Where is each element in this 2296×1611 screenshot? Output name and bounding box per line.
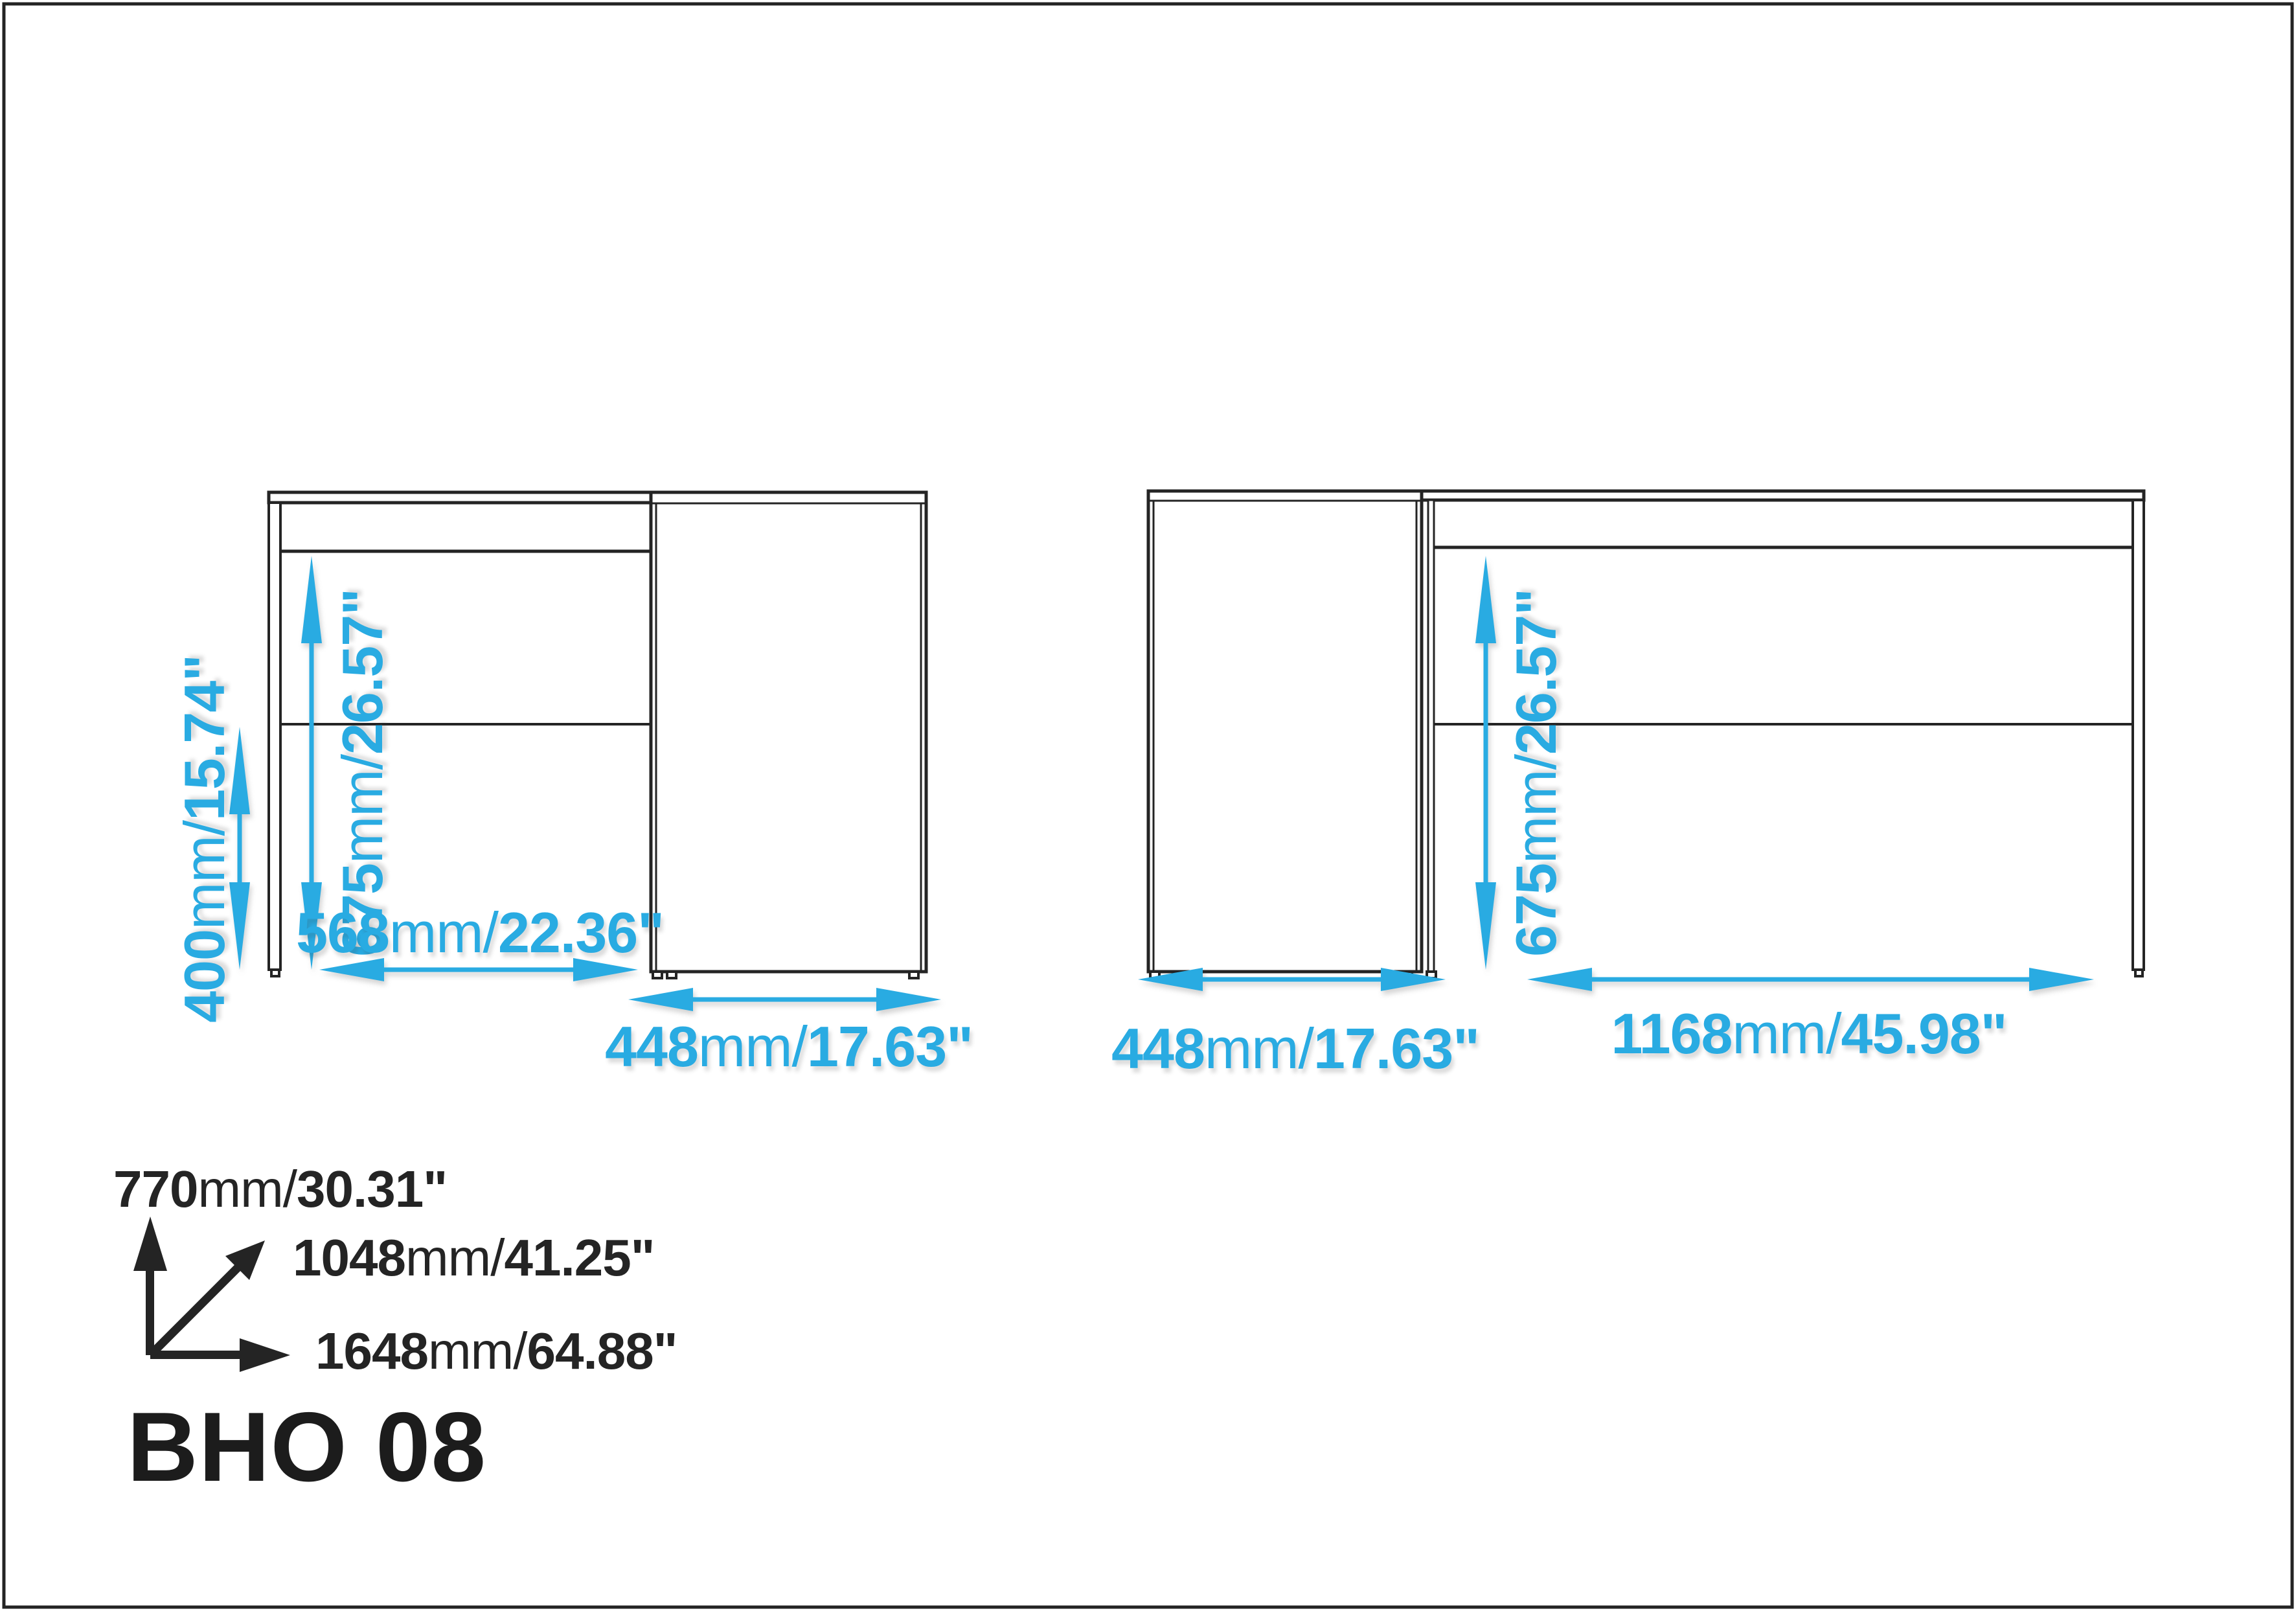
overall-height-inches: 30.31" xyxy=(297,1160,447,1218)
dim-label-448-right: 448mm/17.63" xyxy=(1111,1020,1479,1077)
overall-width-label: 1648mm/64.88" xyxy=(315,1325,677,1377)
axis-diagonal-shaft xyxy=(150,1266,240,1355)
overall-depth-label: 1048mm/41.25" xyxy=(293,1232,655,1284)
overall-depth-unit: mm/ xyxy=(405,1229,505,1286)
overall-width-mm: 1648 xyxy=(315,1322,428,1380)
overall-width-unit: mm/ xyxy=(428,1322,527,1380)
front-left-leg-foot xyxy=(271,970,279,976)
dim-448-right-mm: 448 xyxy=(1111,1016,1205,1080)
dim-1168-mm: 1168 xyxy=(1611,1001,1733,1066)
side-view-drawing xyxy=(1148,491,2144,978)
dim-400-inches: 15.74" xyxy=(172,655,236,821)
axis-horizontal-arrowhead-icon xyxy=(240,1338,290,1372)
dim-448-right-unit: mm/ xyxy=(1205,1016,1313,1080)
front-cabinet-foot-3 xyxy=(909,972,918,978)
axis-vertical-arrowhead-icon xyxy=(133,1217,167,1271)
side-cabinet xyxy=(1148,491,1422,972)
arrow-448-left-horizontal xyxy=(628,988,941,1011)
overall-depth-mm: 1048 xyxy=(293,1229,405,1286)
dim-568-unit: mm/ xyxy=(389,900,498,965)
drawing-sheet: 400mm/15.74" 675mm/26.57" 568mm/22.36" 4… xyxy=(0,0,2296,1611)
axis-triad xyxy=(133,1217,290,1372)
arrow-1168-horizontal xyxy=(1527,968,2094,991)
dim-400-mm: 400 xyxy=(172,930,236,1023)
model-title: BHO 08 xyxy=(127,1398,486,1496)
dim-label-675-right: 675mm/26.57" xyxy=(1508,589,1565,957)
dim-label-1168: 1168mm/45.98" xyxy=(1611,1005,2007,1062)
dim-448-left-unit: mm/ xyxy=(698,1014,807,1079)
front-cabinet-foot-1 xyxy=(653,972,662,978)
dim-675-right-unit: mm/ xyxy=(1504,755,1568,863)
overall-height-unit: mm/ xyxy=(198,1160,297,1218)
overall-height-label: 770mm/30.31" xyxy=(113,1163,447,1215)
overall-height-mm: 770 xyxy=(113,1160,198,1218)
side-right-leg xyxy=(2133,500,2144,970)
dim-568-mm: 568 xyxy=(296,900,389,965)
dim-1168-inches: 45.98" xyxy=(1841,1001,2007,1066)
front-cabinet xyxy=(651,492,926,972)
front-desktop-panel xyxy=(269,492,653,503)
front-left-leg xyxy=(269,503,280,970)
side-right-leg-foot xyxy=(2135,970,2143,976)
overall-depth-inches: 41.25" xyxy=(504,1229,654,1286)
dim-675-right-inches: 26.57" xyxy=(1504,589,1568,755)
dim-568-inches: 22.36" xyxy=(498,900,664,965)
dim-448-left-inches: 17.63" xyxy=(807,1014,973,1079)
dim-400-unit: mm/ xyxy=(172,821,236,930)
dim-448-left-mm: 448 xyxy=(605,1014,698,1079)
axis-horizontal-shaft xyxy=(150,1351,241,1359)
front-cabinet-foot-2 xyxy=(667,972,676,978)
dim-label-448-left: 448mm/17.63" xyxy=(605,1018,973,1075)
side-desktop-panel xyxy=(1422,491,2144,500)
dim-1168-unit: mm/ xyxy=(1732,1001,1841,1066)
side-desk-divider xyxy=(1428,500,1434,972)
overall-width-inches: 64.88" xyxy=(527,1322,677,1380)
dim-448-right-inches: 17.63" xyxy=(1313,1016,1479,1080)
dim-label-400: 400mm/15.74" xyxy=(176,655,233,1023)
arrow-675-right-vertical xyxy=(1475,556,1496,970)
dim-675-right-mm: 675 xyxy=(1504,863,1568,957)
axis-vertical-shaft xyxy=(146,1263,154,1355)
dim-label-568: 568mm/22.36" xyxy=(296,904,664,961)
dim-675-left-inches: 26.57" xyxy=(330,589,394,755)
dim-675-left-unit: mm/ xyxy=(330,755,394,863)
